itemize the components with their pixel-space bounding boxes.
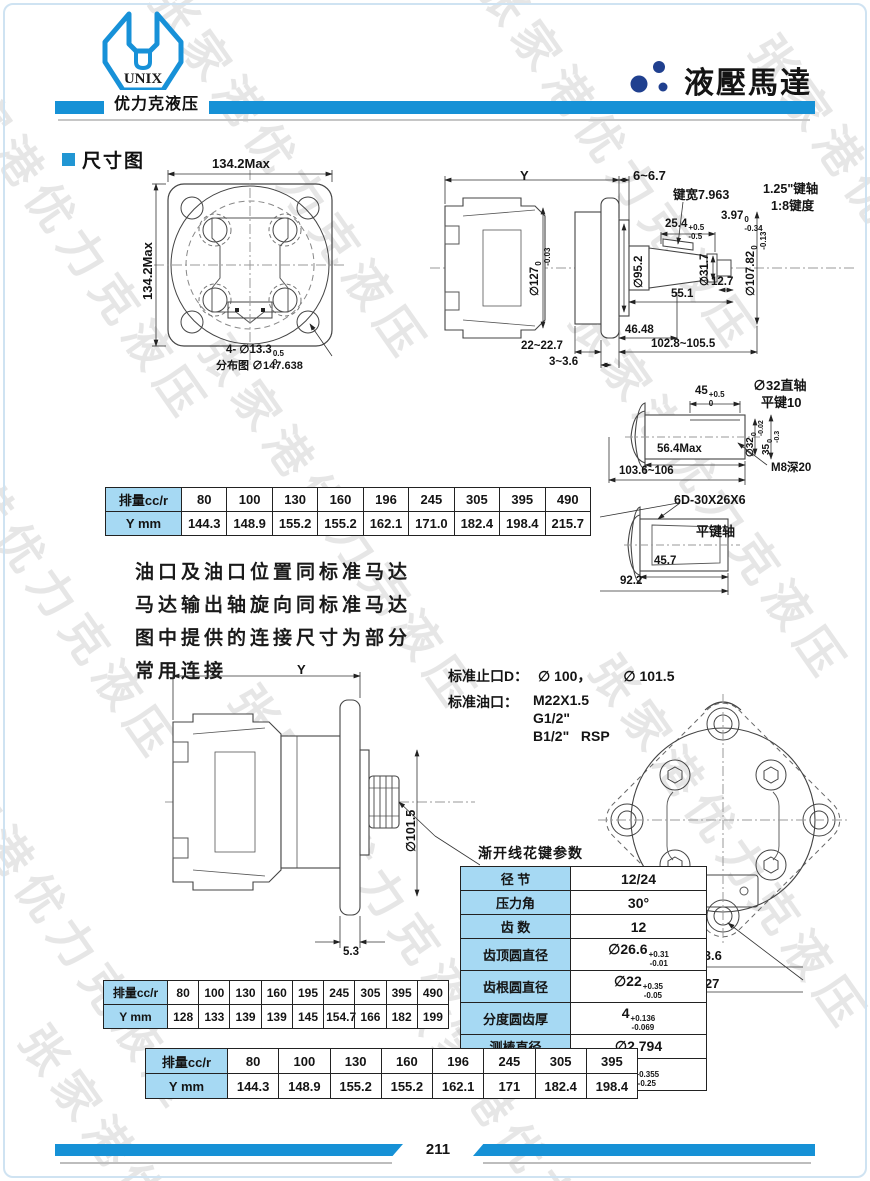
section-bullet-icon (62, 153, 75, 166)
value-cell: 139 (261, 1005, 292, 1029)
value-cell: 100 (199, 981, 230, 1005)
value-cell: 154.7 (324, 1005, 355, 1029)
value-cell: 305 (355, 981, 386, 1005)
spline-param-row: 径 节12/24 (461, 867, 707, 891)
dim-564: 56.4Max (657, 443, 702, 455)
value-cell: 155.2 (330, 1074, 381, 1099)
row-header-cell: 排量cc/r (106, 488, 182, 512)
value-cell: 160 (261, 981, 292, 1005)
table-row: 排量cc/r80100130160196245305395490 (106, 488, 591, 512)
dim-1028: 102.8~105.5 (651, 338, 715, 350)
value-cell: 155.2 (272, 512, 317, 536)
value-cell: 100 (279, 1049, 330, 1074)
value-cell: 133 (199, 1005, 230, 1029)
value-cell: 395 (586, 1049, 637, 1074)
param-label-cell: 齿 数 (461, 915, 571, 939)
value-cell: 195 (292, 981, 323, 1005)
value-cell: 166 (355, 1005, 386, 1029)
dia-127: ∅1270-0.03 (527, 248, 552, 296)
dim-y: Y (520, 168, 529, 183)
value-cell: 130 (230, 981, 261, 1005)
row-header-cell: 排量cc/r (104, 981, 168, 1005)
value-cell: 490 (545, 488, 591, 512)
dim-1036: 103.6~106 (619, 465, 674, 477)
port-line-2: G1/2" (533, 710, 570, 726)
value-cell: 144.3 (228, 1074, 279, 1099)
spline-shaft-drawing: 6D-30X26X6 平键轴 45.7 92.2 (600, 493, 862, 598)
value-cell: 182.4 (454, 512, 499, 536)
dia-10782: ∅107.820-0.13 (743, 232, 768, 296)
value-cell: 245 (484, 1049, 535, 1074)
section-header: 尺寸图 (62, 146, 145, 173)
table-row: Y mm128133139139145154.7166182199 (104, 1005, 449, 1029)
spline-param-row: 齿根圆直径∅22+0.35-0.05 (461, 971, 707, 1003)
key-width-label: 键宽7.963 (673, 184, 729, 203)
value-cell: 395 (500, 488, 545, 512)
value-cell: 160 (381, 1049, 432, 1074)
dim-457: 45.7 (654, 555, 676, 567)
value-cell: 245 (409, 488, 454, 512)
param-label-cell: 压力角 (461, 891, 571, 915)
dia-317: ∅31.7 (697, 254, 711, 286)
spline-param-row: 齿顶圆直径∅26.6+0.31-0.01 (461, 939, 707, 971)
dim-35: 350-0.3 (761, 431, 781, 455)
value-cell: 148.9 (227, 512, 272, 536)
dim-45: 45+0.50 (695, 385, 725, 408)
table-row: 排量cc/r80100130160196245305395 (146, 1049, 638, 1074)
value-cell: 162.1 (433, 1074, 484, 1099)
logo-text: UNIX (124, 71, 163, 87)
row-header-cell: Y mm (146, 1074, 228, 1099)
dim-254: 25.4+0.5-0.5 (665, 218, 704, 241)
flange-front-drawing: 134.2Max 134.2Max 4- ∅13.30.50 分布图 ∅147.… (140, 160, 385, 405)
param-label-cell: 齿顶圆直径 (461, 939, 571, 971)
footer-line-right (483, 1162, 811, 1164)
value-cell: 148.9 (279, 1074, 330, 1099)
value-cell: 196 (433, 1049, 484, 1074)
dia-1015: ∅101.5 (403, 810, 418, 852)
catalog-page: 张家港优力克液压 张家港优力克液压 张家港优力克液压 张家港优力克液压 张家港优… (0, 0, 870, 1181)
dim-551: 55.1 (671, 288, 693, 300)
row-header-cell: 排量cc/r (146, 1049, 228, 1074)
value-cell: 100 (227, 488, 272, 512)
value-cell: 160 (318, 488, 363, 512)
title-dots-icon (628, 56, 678, 98)
note-line: 图中提供的连接尺寸为部分 (135, 622, 411, 655)
displacement-table-1: 排量cc/r80100130160196245305395490Y mm144.… (105, 487, 591, 536)
dim-y: Y (297, 662, 306, 677)
shaft-note2: 1:8键度 (771, 195, 814, 214)
value-cell: 182 (386, 1005, 417, 1029)
param-value-cell: ∅22+0.35-0.05 (571, 971, 707, 1003)
value-cell: 215.7 (545, 512, 591, 536)
param-label-cell: 径 节 (461, 867, 571, 891)
header-gray-line (58, 119, 810, 121)
dim-6-67: 6~6.7 (633, 168, 666, 183)
dim-4648: 46.48 (625, 324, 654, 336)
straight-shaft-drawing: ∅32直轴 平键10 45+0.50 ∅320-0.02 350-0.3 56.… (595, 373, 867, 488)
param-label-cell: 分度圆齿厚 (461, 1003, 571, 1035)
value-cell: 490 (417, 981, 448, 1005)
value-cell: 196 (363, 488, 408, 512)
value-cell: 182.4 (535, 1074, 586, 1099)
param-value-cell: 30° (571, 891, 707, 915)
footer-bar-left (55, 1144, 403, 1156)
dim-2227: 22~22.7 (521, 340, 563, 352)
page-number: 211 (408, 1141, 468, 1158)
footer-line-left (60, 1162, 392, 1164)
spline-params-title: 渐开线花键参数 (478, 843, 583, 863)
value-cell: 80 (228, 1049, 279, 1074)
displacement-table-3: 排量cc/r80100130160196245305395Y mm144.314… (145, 1048, 638, 1099)
value-cell: 130 (272, 488, 317, 512)
value-cell: 128 (168, 1005, 199, 1029)
logo-subtitle: 优力克液压 (104, 90, 209, 114)
table-row: 排量cc/r80100130160195245305395490 (104, 981, 449, 1005)
dim-336: 3~3.6 (549, 356, 578, 368)
value-cell: 199 (417, 1005, 448, 1029)
param-value-cell: 12/24 (571, 867, 707, 891)
spline-title: 6D-30X26X6 (674, 493, 746, 507)
bcd-label: 分布图 ∅147.638 (216, 357, 303, 373)
displacement-table-2: 排量cc/r80100130160195245305395490Y mm1281… (103, 980, 449, 1029)
dim-height: 134.2Max (140, 242, 155, 300)
value-cell: 305 (535, 1049, 586, 1074)
side-view-top-drawing: Y 6~6.7 键宽7.963 1.25"键轴 1:8键度 3.970-0.34… (425, 168, 865, 373)
value-cell: 395 (386, 981, 417, 1005)
value-cell: 198.4 (586, 1074, 637, 1099)
value-cell: 198.4 (500, 512, 545, 536)
dim-53: 5.3 (343, 946, 359, 958)
m8-label: M8深20 (771, 459, 811, 475)
value-cell: 171 (484, 1074, 535, 1099)
value-cell: 139 (230, 1005, 261, 1029)
page-title: 液壓馬達 (684, 58, 812, 102)
dim-127b: 12.7 (711, 276, 733, 288)
value-cell: 171.0 (409, 512, 454, 536)
param-value-cell: ∅26.6+0.31-0.01 (571, 939, 707, 971)
value-cell: 130 (330, 1049, 381, 1074)
standard-port-label: 标准油口： (448, 692, 518, 712)
footer-bar-right (473, 1144, 815, 1156)
value-cell: 155.2 (381, 1074, 432, 1099)
spline-subtitle: 平键轴 (696, 521, 735, 540)
value-cell: 80 (168, 981, 199, 1005)
value-cell: 155.2 (318, 512, 363, 536)
spline-param-row: 压力角30° (461, 891, 707, 915)
table-row: Y mm144.3148.9155.2155.2162.1171.0182.41… (106, 512, 591, 536)
note-line: 油口及油口位置同标准马达 (135, 556, 411, 589)
spline-param-row: 分度圆齿厚4+0.136-0.069 (461, 1003, 707, 1035)
unix-logo-icon: UNIX (93, 10, 193, 100)
dim-width: 134.2Max (212, 156, 270, 171)
param-label-cell: 齿根圆直径 (461, 971, 571, 1003)
value-cell: 245 (324, 981, 355, 1005)
value-cell: 162.1 (363, 512, 408, 536)
dim-922: 92.2 (620, 575, 642, 587)
dia-952: ∅95.2 (631, 256, 645, 288)
value-cell: 145 (292, 1005, 323, 1029)
shaft-title2: 平键10 (761, 392, 801, 411)
table-row: Y mm144.3148.9155.2155.2162.1171182.4198… (146, 1074, 638, 1099)
note-line: 马达输出轴旋向同标准马达 (135, 589, 411, 622)
dim-397: 3.970-0.34 (721, 210, 763, 233)
spline-param-row: 齿 数12 (461, 915, 707, 939)
value-cell: 305 (454, 488, 499, 512)
row-header-cell: Y mm (104, 1005, 168, 1029)
side-view-mid-drawing: Y ∅101.5 5.3 (145, 660, 480, 960)
param-value-cell: 12 (571, 915, 707, 939)
section-title: 尺寸图 (82, 146, 145, 173)
row-header-cell: Y mm (106, 512, 182, 536)
param-value-cell: 4+0.136-0.069 (571, 1003, 707, 1035)
value-cell: 80 (182, 488, 227, 512)
value-cell: 144.3 (182, 512, 227, 536)
